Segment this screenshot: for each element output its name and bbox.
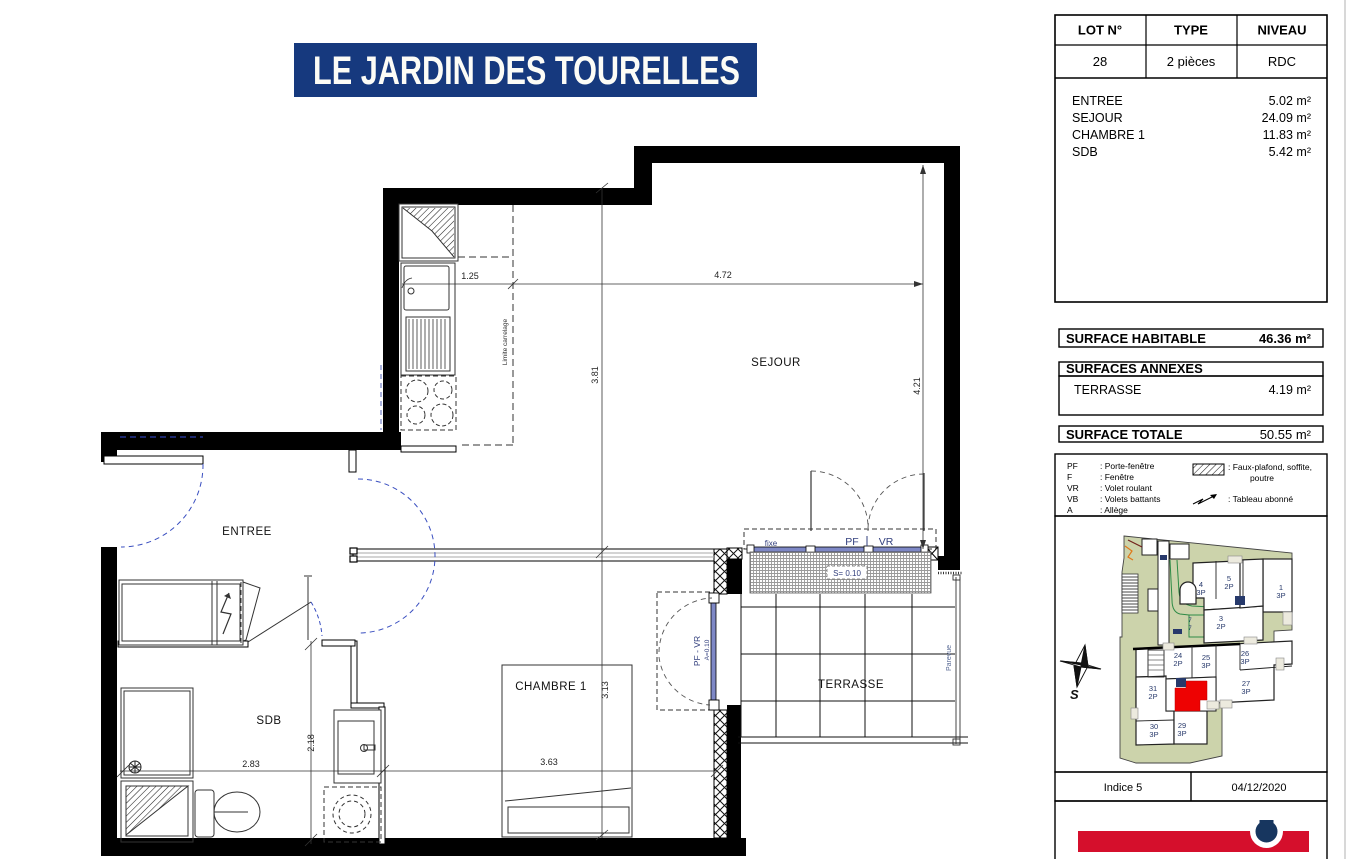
svg-text:A: A bbox=[1067, 505, 1073, 515]
svg-text:2P: 2P bbox=[1148, 692, 1157, 701]
svg-text:04/12/2020: 04/12/2020 bbox=[1231, 782, 1286, 794]
svg-text:2P: 2P bbox=[1216, 622, 1225, 631]
svg-text:3.81: 3.81 bbox=[590, 366, 600, 384]
svg-text:PF: PF bbox=[845, 536, 858, 548]
svg-text:2P: 2P bbox=[1224, 582, 1233, 591]
svg-text:: Fenêtre: : Fenêtre bbox=[1100, 472, 1134, 482]
svg-text:RDC: RDC bbox=[1268, 54, 1296, 69]
svg-text:VR: VR bbox=[1067, 483, 1079, 493]
svg-text:SURFACE HABITABLE: SURFACE HABITABLE bbox=[1066, 331, 1206, 346]
svg-text:11.83 m²: 11.83 m² bbox=[1263, 128, 1311, 142]
svg-text:TERRASSE: TERRASSE bbox=[818, 679, 884, 691]
svg-text:SEJOUR: SEJOUR bbox=[751, 357, 801, 369]
svg-text:3P: 3P bbox=[1241, 687, 1250, 696]
svg-text:Limite carrelage: Limite carrelage bbox=[502, 318, 509, 365]
svg-text:ENTREE: ENTREE bbox=[1072, 94, 1123, 108]
svg-text:3.63: 3.63 bbox=[540, 757, 558, 767]
svg-text:S: S bbox=[1070, 687, 1079, 702]
svg-text:PF - VR: PF - VR bbox=[692, 636, 702, 666]
svg-text:: Volets battants: : Volets battants bbox=[1100, 494, 1160, 504]
svg-text:28: 28 bbox=[1093, 54, 1107, 69]
svg-text:5.42 m²: 5.42 m² bbox=[1269, 145, 1311, 159]
svg-text:VR: VR bbox=[879, 536, 894, 548]
svg-text:S= 0.10: S= 0.10 bbox=[833, 569, 861, 578]
svg-text:3P: 3P bbox=[1276, 591, 1285, 600]
svg-text:3P: 3P bbox=[1201, 661, 1210, 670]
svg-text:SDB: SDB bbox=[256, 715, 281, 727]
svg-text:3P: 3P bbox=[1240, 657, 1249, 666]
svg-text:3P: 3P bbox=[1177, 729, 1186, 738]
svg-text:ENTREE: ENTREE bbox=[222, 526, 272, 538]
svg-text:2.18: 2.18 bbox=[306, 734, 316, 752]
svg-text:46.36 m²: 46.36 m² bbox=[1259, 331, 1312, 346]
svg-text:5.02 m²: 5.02 m² bbox=[1269, 94, 1311, 108]
svg-text:3.13: 3.13 bbox=[600, 681, 610, 699]
svg-text:TERRASSE: TERRASSE bbox=[1074, 383, 1141, 397]
svg-text:CHAMBRE 1: CHAMBRE 1 bbox=[1072, 128, 1145, 142]
svg-text:3P: 3P bbox=[1149, 730, 1158, 739]
svg-text:: Volet roulant: : Volet roulant bbox=[1100, 483, 1153, 493]
svg-text:: Tableau abonné: : Tableau abonné bbox=[1228, 494, 1293, 504]
svg-text:4.19 m²: 4.19 m² bbox=[1269, 383, 1311, 397]
svg-text:SURFACE TOTALE: SURFACE TOTALE bbox=[1066, 427, 1183, 442]
svg-text:50.55 m²: 50.55 m² bbox=[1260, 427, 1312, 442]
svg-text:NIVEAU: NIVEAU bbox=[1257, 23, 1306, 38]
svg-text:poutre: poutre bbox=[1250, 473, 1274, 483]
svg-text:3P: 3P bbox=[1196, 588, 1205, 597]
svg-text:: Allège: : Allège bbox=[1100, 505, 1128, 515]
svg-text:SURFACES ANNEXES: SURFACES ANNEXES bbox=[1066, 361, 1203, 376]
svg-text:SEJOUR: SEJOUR bbox=[1072, 111, 1123, 125]
svg-text:: Faux-plafond, soffite,: : Faux-plafond, soffite, bbox=[1228, 462, 1312, 472]
svg-text:Parevue: Parevue bbox=[946, 645, 953, 671]
svg-text:24.09 m²: 24.09 m² bbox=[1262, 111, 1311, 125]
svg-text:fixe: fixe bbox=[765, 539, 778, 548]
svg-text:TYPE: TYPE bbox=[1174, 23, 1208, 38]
svg-text:LOT N°: LOT N° bbox=[1078, 23, 1122, 38]
svg-text:SDB: SDB bbox=[1072, 145, 1098, 159]
svg-text:: Porte-fenêtre: : Porte-fenêtre bbox=[1100, 461, 1155, 471]
svg-text:F: F bbox=[1067, 472, 1072, 482]
svg-text:A=0.10: A=0.10 bbox=[704, 639, 711, 660]
svg-text:2.83: 2.83 bbox=[242, 759, 260, 769]
svg-text:1.25: 1.25 bbox=[461, 271, 479, 281]
svg-text:2 pièces: 2 pièces bbox=[1167, 54, 1216, 69]
svg-text:VB: VB bbox=[1067, 494, 1079, 504]
svg-text:LE JARDIN DES TOURELLES: LE JARDIN DES TOURELLES bbox=[313, 49, 740, 93]
svg-text:4.21: 4.21 bbox=[912, 377, 922, 395]
svg-text:Indice 5: Indice 5 bbox=[1104, 782, 1143, 794]
svg-text:2P: 2P bbox=[1173, 659, 1182, 668]
svg-text:PF: PF bbox=[1067, 461, 1078, 471]
svg-text:CHAMBRE 1: CHAMBRE 1 bbox=[515, 681, 587, 693]
svg-text:4.72: 4.72 bbox=[714, 270, 732, 280]
